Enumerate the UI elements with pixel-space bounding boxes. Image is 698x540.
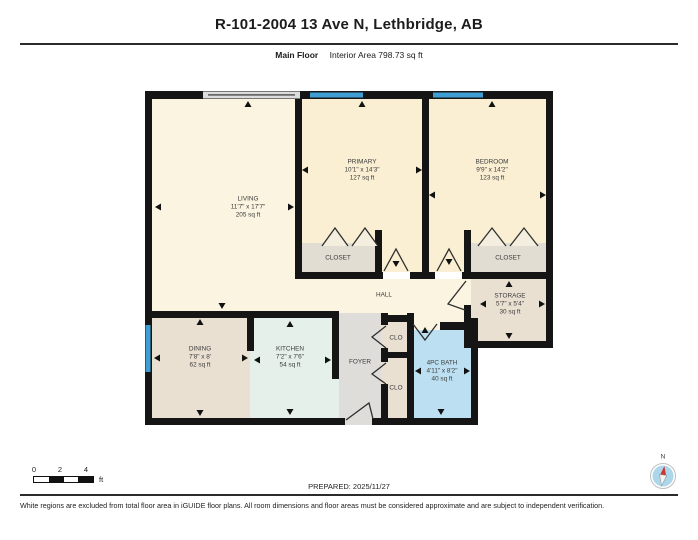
room-area: 205 sq ft [231, 211, 266, 219]
room-label-storage: STORAGE 5'7" x 5'4" 30 sq ft [494, 292, 525, 315]
prepared-date: PREPARED: 2025/11/27 [0, 482, 698, 491]
primary-closet-label: CLOSET [325, 255, 351, 262]
room-fills [152, 99, 546, 425]
room-area: 30 sq ft [494, 308, 525, 316]
room-area: 40 sq ft [426, 375, 457, 383]
room-area: 127 sq ft [344, 174, 379, 182]
floor-plan-page: R-101-2004 13 Ave N, Lethbridge, AB Main… [0, 0, 698, 540]
scale-tick-2: 2 [58, 465, 62, 474]
wall-foyer-clo-3 [381, 384, 388, 425]
hall-label: HALL [376, 292, 392, 299]
room-area: 62 sq ft [189, 361, 211, 369]
bedroom-closet-label: CLOSET [495, 255, 521, 262]
room-label-dining: DINING 7'8" x 8' 62 sq ft [189, 345, 211, 368]
wall-primary-closet [375, 230, 382, 272]
clo-upper-label: CLO [389, 335, 402, 342]
wall-bath-right [471, 318, 478, 425]
room-name: PRIMARY [344, 158, 379, 166]
scale-tick-4: 4 [84, 465, 88, 474]
wall-clo-bath [407, 313, 414, 425]
room-area: 54 sq ft [276, 361, 304, 369]
room-dims: 5'7" x 5'4" [494, 300, 525, 308]
clo-lower-label: CLO [389, 385, 402, 392]
wall-primary-bedroom [422, 99, 429, 272]
room-label-primary: PRIMARY 10'1" x 14'3" 127 sq ft [344, 158, 379, 181]
wall-bottom-left [145, 418, 345, 425]
sliding-door-track [208, 94, 295, 95]
room-dims: 4'11" x 8'2" [426, 367, 457, 375]
wall-hall-1 [295, 272, 383, 279]
wall-kitchen-left-stub [247, 311, 254, 351]
room-dims: 9'9" x 14'2" [475, 166, 508, 174]
wall-hall-3 [462, 272, 546, 279]
scale-tick-0: 0 [32, 465, 36, 474]
room-name: BEDROOM [475, 158, 508, 166]
kitchen-opening-fill [332, 379, 339, 418]
room-label-bath: 4PC BATH 4'11" x 8'2" 40 sq ft [426, 359, 457, 382]
wall-kitchen-right [332, 311, 339, 379]
wall-right [546, 91, 553, 348]
room-name: KITCHEN [276, 345, 304, 353]
room-name: DINING [189, 345, 211, 353]
room-dims: 7'8" x 8' [189, 353, 211, 361]
wall-bedroom-closet [464, 230, 471, 272]
room-label-living: LIVING 11'7" x 17'7" 205 sq ft [231, 195, 266, 218]
room-label-bedroom: BEDROOM 9'9" x 14'2" 123 sq ft [475, 158, 508, 181]
wall-living-primary [295, 99, 302, 279]
entry-door-gap [345, 418, 372, 425]
room-name: LIVING [231, 195, 266, 203]
floor-plan-drawing [0, 0, 698, 540]
room-name: 4PC BATH [426, 359, 457, 367]
wall-kitchen-top [247, 311, 339, 318]
footer-divider [20, 494, 678, 496]
room-area: 123 sq ft [475, 174, 508, 182]
primary-window [310, 93, 363, 98]
room-dims: 10'1" x 14'3" [344, 166, 379, 174]
foyer-fill [339, 313, 381, 425]
room-dims: 7'2" x 7'6" [276, 353, 304, 361]
room-label-kitchen: KITCHEN 7'2" x 7'6" 54 sq ft [276, 345, 304, 368]
vestibule-fill [412, 279, 464, 322]
compass-icon [641, 454, 685, 498]
foyer-label: FOYER [349, 359, 371, 366]
dining-window [146, 325, 151, 372]
wall-hall-2 [410, 272, 435, 279]
room-dims: 11'7" x 17'7" [231, 203, 266, 211]
wall-left [145, 91, 152, 425]
wall-dining-top [145, 311, 247, 318]
bedroom-window [433, 93, 483, 98]
wall-bath-top [440, 322, 471, 330]
room-name: STORAGE [494, 292, 525, 300]
disclaimer-text: White regions are excluded from total fl… [20, 501, 620, 510]
